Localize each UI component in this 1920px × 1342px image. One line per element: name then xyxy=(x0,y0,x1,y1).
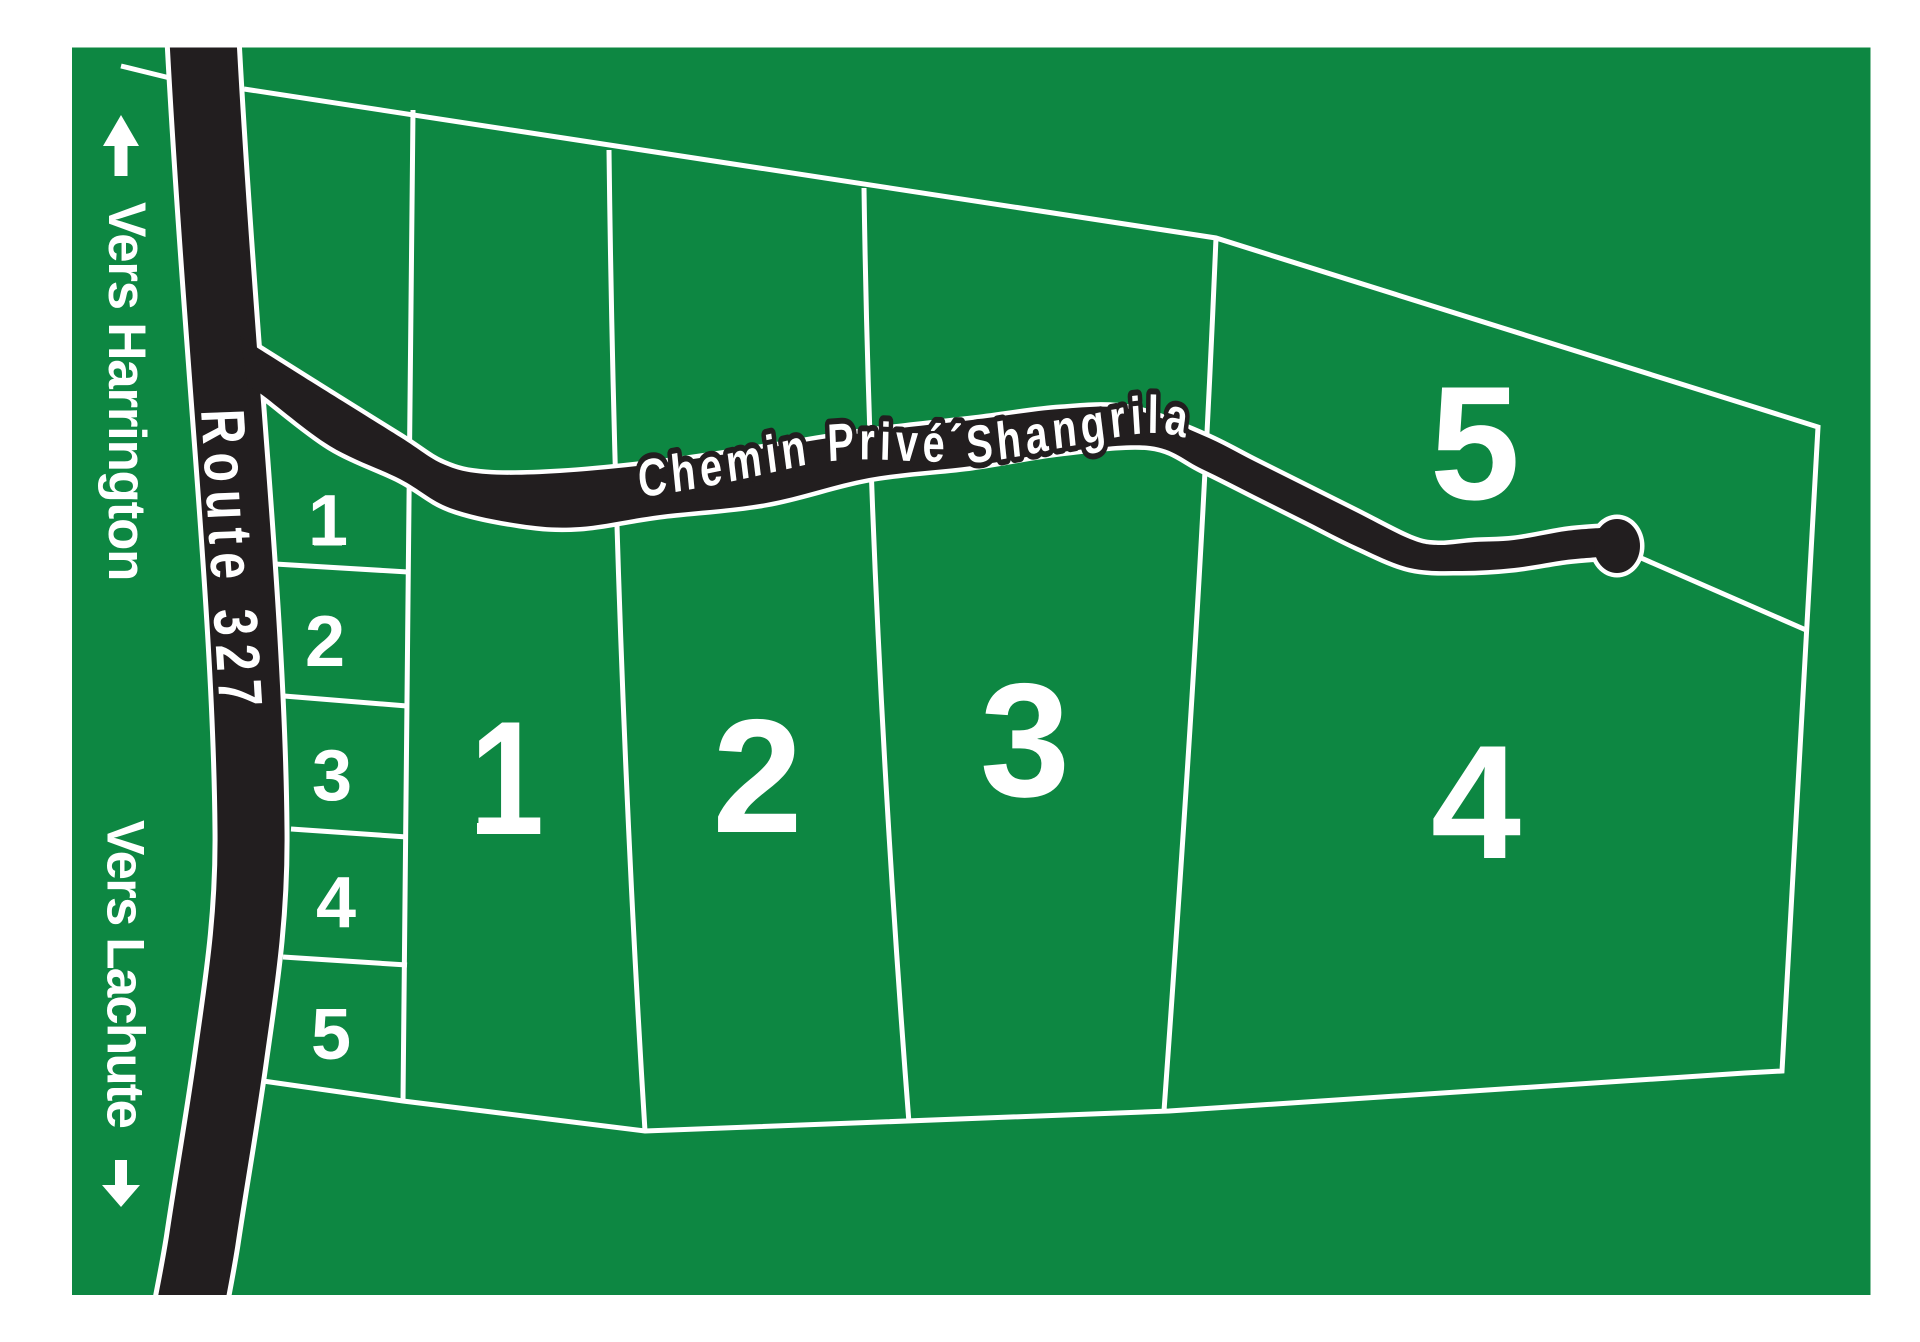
svg-text:3: 3 xyxy=(980,650,1070,831)
svg-text:1: 1 xyxy=(470,689,544,869)
svg-text:1: 1 xyxy=(308,481,348,561)
svg-text:4: 4 xyxy=(1431,712,1521,893)
svg-text:5: 5 xyxy=(1430,353,1520,534)
svg-text:Vers Harrington: Vers Harrington xyxy=(97,202,156,580)
svg-text:2: 2 xyxy=(305,602,345,682)
svg-text:Vers Lachute: Vers Lachute xyxy=(96,820,155,1128)
svg-text:3: 3 xyxy=(312,736,352,816)
svg-text:2: 2 xyxy=(712,686,802,867)
svg-text:4: 4 xyxy=(316,863,356,943)
svg-text:5: 5 xyxy=(311,995,351,1075)
